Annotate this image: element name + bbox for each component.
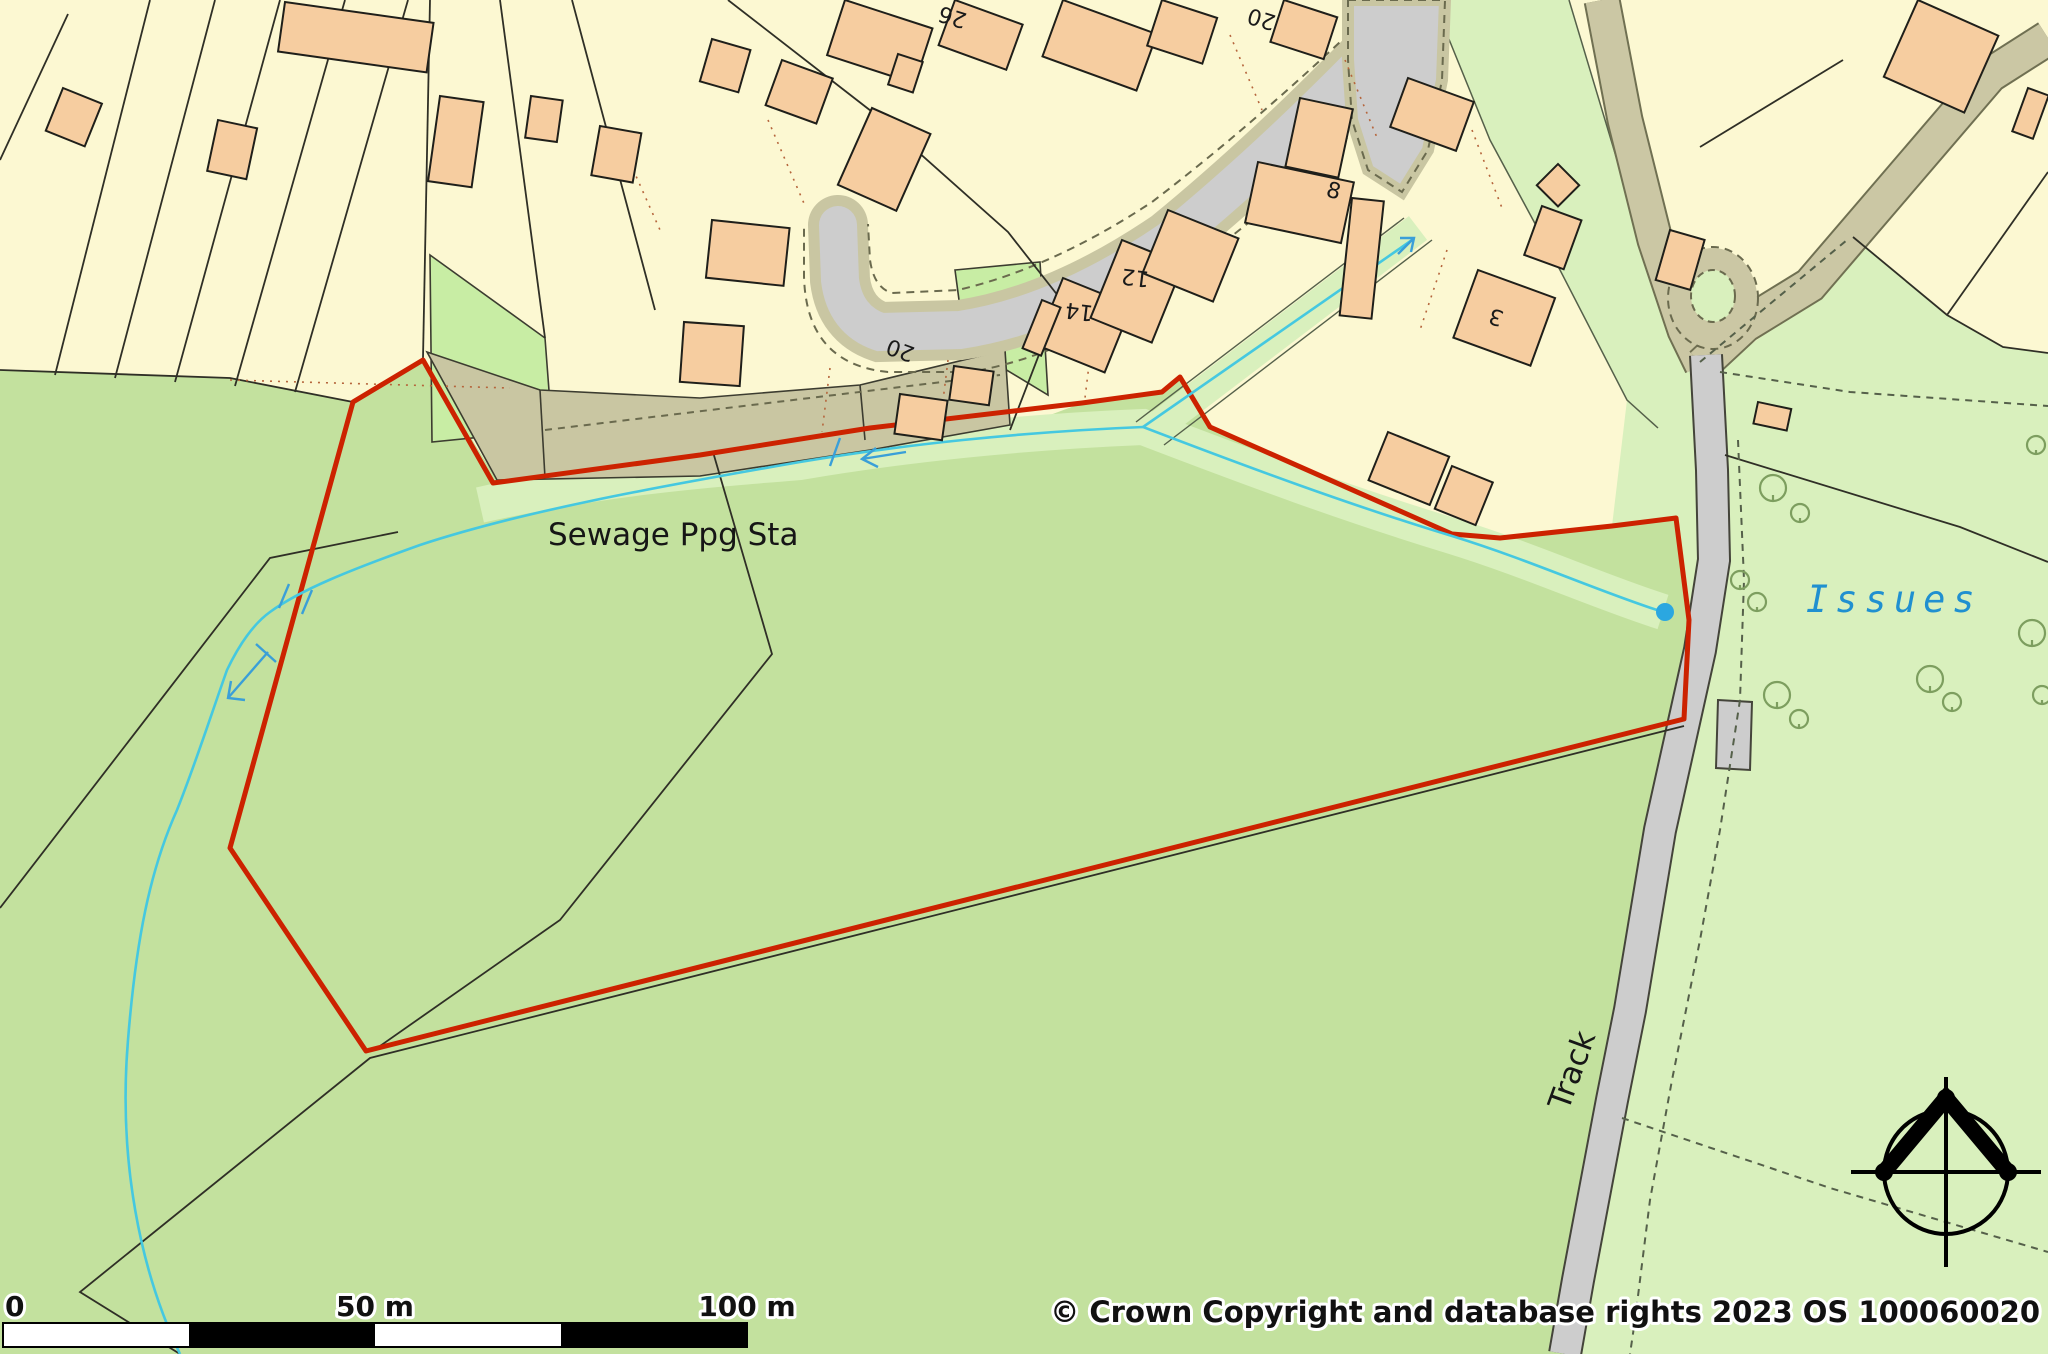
house-number: 14 (1064, 297, 1095, 325)
building (591, 126, 641, 183)
sewage-works-label: Sewage Ppg Sta (548, 517, 798, 553)
track-widening (1716, 700, 1752, 770)
copyright-notice: © Crown Copyright and database rights 20… (1050, 1295, 2040, 1329)
building (949, 366, 993, 405)
scale-fifty-label: 50 m (336, 1290, 414, 1323)
scale-bar-segment (189, 1323, 375, 1347)
map-canvas: Sewage Ppg Sta Issues Track 26 20 20 14 … (0, 0, 2048, 1354)
building (525, 96, 563, 142)
scale-zero-label: 0 (5, 1290, 24, 1323)
ordnance-survey-map: Sewage Ppg Sta Issues Track 26 20 20 14 … (0, 0, 2048, 1354)
building (680, 322, 744, 386)
roundabout-island (1691, 270, 1735, 322)
issues-spring-dot-icon (1656, 603, 1674, 621)
scale-bar-segment (561, 1323, 747, 1347)
building (894, 394, 947, 440)
issues-label: Issues (1806, 578, 1982, 621)
house-number: 12 (1120, 263, 1151, 291)
building (706, 220, 790, 286)
scale-hundred-label: 100 m (698, 1290, 795, 1323)
